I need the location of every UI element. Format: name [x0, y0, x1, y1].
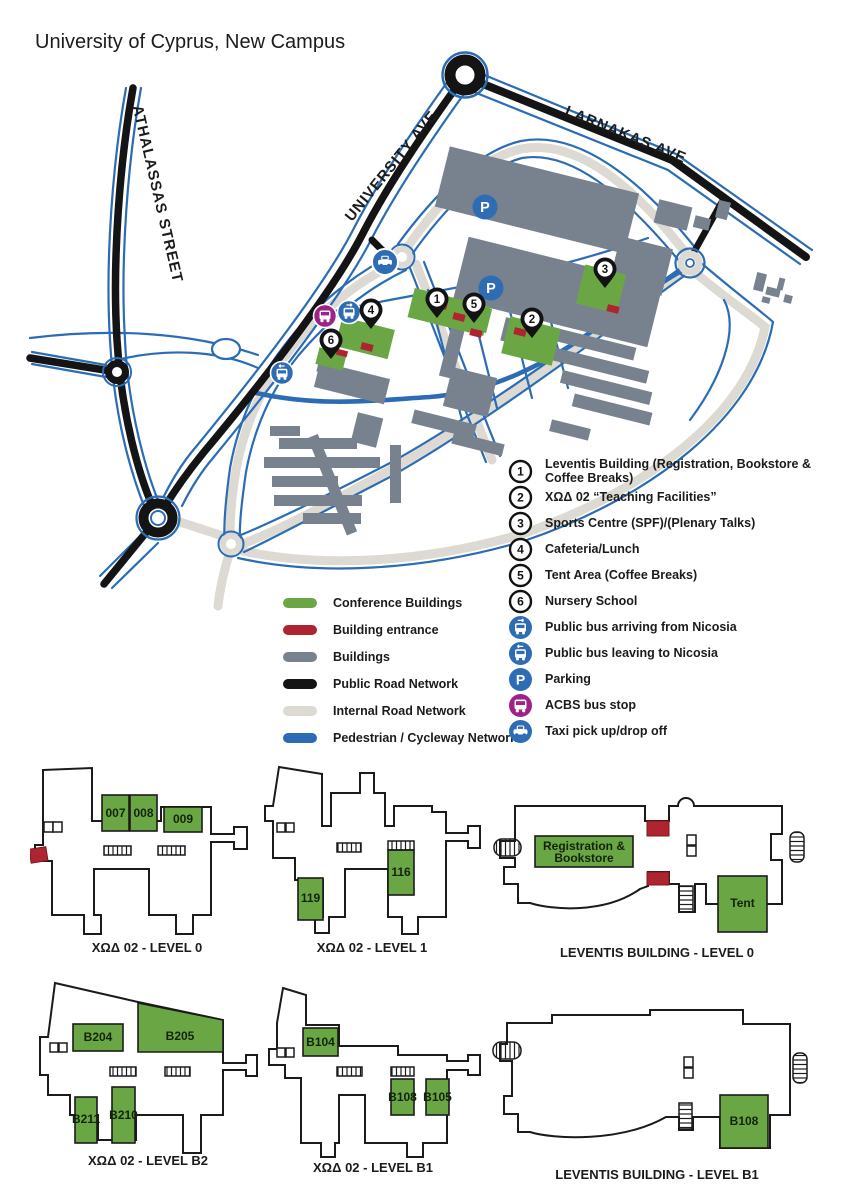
- number-3-icon: 3: [508, 511, 533, 536]
- legend-item-conference-buildings: Conference Buildings: [283, 589, 517, 616]
- number-4-icon: 4: [508, 537, 533, 562]
- svg-text:B108: B108: [730, 1114, 759, 1128]
- stairs-icon: [337, 1067, 362, 1076]
- svg-text:5: 5: [517, 568, 524, 582]
- number-6-icon: 6: [508, 589, 533, 614]
- pond: [212, 339, 240, 359]
- acbs-bus-stop-icon: [314, 305, 337, 328]
- floorplan-xod02-levelB2: B204 B205 B211 B210 ΧΩΔ 02 - LEVEL B2: [30, 975, 265, 1170]
- number-2-icon: 2: [508, 485, 533, 510]
- stairs-icon: [493, 1042, 521, 1059]
- svg-text:B211: B211: [72, 1112, 100, 1126]
- svg-text:B104: B104: [306, 1035, 335, 1049]
- legend-item-bus-leaving: Public bus leaving to Nicosia: [508, 640, 848, 666]
- floorplan-xod02-level1: 119 116 ΧΩΔ 02 - LEVEL 1: [255, 758, 490, 958]
- floorplan-leventis-level0: Registration & Bookstore Tent LEVENTIS B…: [490, 790, 825, 965]
- svg-text:2: 2: [529, 314, 535, 326]
- stairs-icon: [110, 1067, 136, 1076]
- stairs-icon: [165, 1067, 190, 1076]
- internal-road-swatch: [283, 706, 317, 716]
- legend-item-pedestrian: Pedestrian / Cycleway Network: [283, 724, 517, 751]
- svg-text:1: 1: [434, 294, 441, 306]
- floorplan-xod02-levelB1: B104 B108 B105 ΧΩΔ 02 - LEVEL B1: [255, 975, 490, 1175]
- legend-item-internal-road: Internal Road Network: [283, 697, 517, 724]
- legend-item-bus-arriving: Public bus arriving from Nicosia: [508, 614, 848, 640]
- number-1-icon: 1: [508, 459, 533, 484]
- svg-text:6: 6: [328, 335, 334, 347]
- conference-swatch: [283, 598, 317, 608]
- pedestrian-swatch: [283, 733, 317, 743]
- svg-text:3: 3: [602, 264, 608, 276]
- street-label-athalassas: ATHALASSAS STREET: [129, 104, 186, 285]
- stairs-icon: [494, 839, 521, 856]
- acbs-bus-icon: [508, 693, 533, 718]
- taxi-icon: [508, 719, 533, 744]
- bus-arriving-icon: [508, 615, 533, 640]
- legend-item-4: 4 Cafeteria/Lunch: [508, 536, 848, 562]
- svg-text:008: 008: [133, 806, 153, 820]
- stairs-icon: [793, 1053, 807, 1083]
- floorplan-caption: ΧΩΔ 02 - LEVEL 0: [92, 940, 203, 955]
- legend-item-parking: P Parking: [508, 666, 848, 692]
- stairs-icon: [679, 886, 693, 912]
- stairs-icon: [790, 832, 804, 862]
- svg-text:009: 009: [173, 812, 193, 826]
- svg-text:4: 4: [368, 305, 375, 317]
- bus-leaving-icon: [271, 362, 294, 385]
- svg-text:2: 2: [517, 490, 524, 504]
- svg-text:119: 119: [301, 891, 321, 905]
- entrance-mark: [647, 821, 669, 836]
- stairs-icon: [679, 1103, 692, 1129]
- stairs-icon: [337, 843, 361, 852]
- buildings-swatch: [283, 652, 317, 662]
- legend-item-building-entrance: Building entrance: [283, 616, 517, 643]
- legend-item-6: 6 Nursery School: [508, 588, 848, 614]
- floorplan-caption: LEVENTIS BUILDING - LEVEL B1: [555, 1167, 758, 1182]
- legend-item-3: 3 Sports Centre (SPF)/(Plenary Talks): [508, 510, 848, 536]
- svg-text:Bookstore: Bookstore: [554, 851, 614, 865]
- bus-leaving-icon: [508, 641, 533, 666]
- floorplan-caption: LEVENTIS BUILDING - LEVEL 0: [560, 945, 754, 960]
- svg-text:P: P: [480, 200, 490, 216]
- public-road-swatch: [283, 679, 317, 689]
- floorplan-caption: ΧΩΔ 02 - LEVEL 1: [317, 940, 428, 955]
- svg-text:5: 5: [471, 299, 478, 311]
- entrance-mark: [647, 872, 669, 885]
- floorplan-caption: ΧΩΔ 02 - LEVEL B1: [313, 1160, 433, 1175]
- campus-map-page: { "title": "University of Cyprus, New Ca…: [0, 0, 848, 1200]
- parking-icon-1: P: [473, 195, 498, 220]
- svg-text:P: P: [486, 281, 496, 297]
- svg-text:B108: B108: [388, 1090, 417, 1104]
- svg-text:116: 116: [391, 865, 411, 879]
- stairs-icon: [158, 846, 185, 855]
- stairs-icon: [388, 841, 414, 850]
- legend-item-1: 1 Leventis Building (Registration, Books…: [508, 458, 848, 484]
- svg-text:1: 1: [517, 464, 524, 478]
- entrance-swatch: [283, 625, 317, 635]
- legend-item-public-road: Public Road Network: [283, 670, 517, 697]
- entrance-mark: [30, 847, 48, 863]
- number-5-icon: 5: [508, 563, 533, 588]
- floorplan-xod02-level0: 007 008 009 ΧΩΔ 02 - LEVEL 0: [30, 758, 265, 958]
- stairs-icon: [104, 846, 131, 855]
- svg-text:4: 4: [517, 542, 524, 556]
- poi-legend: 1 Leventis Building (Registration, Books…: [508, 458, 848, 744]
- svg-text:6: 6: [517, 594, 524, 608]
- parking-icon: P: [508, 667, 533, 692]
- svg-text:B205: B205: [166, 1029, 195, 1043]
- svg-text:3: 3: [517, 516, 524, 530]
- bus-arriving-icon: [338, 301, 361, 324]
- legend-item-buildings: Buildings: [283, 643, 517, 670]
- legend-item-acbs: ACBS bus stop: [508, 692, 848, 718]
- svg-text:B204: B204: [84, 1030, 113, 1044]
- svg-text:P: P: [516, 671, 525, 687]
- road-legend: Conference Buildings Building entrance B…: [283, 589, 517, 751]
- taxi-icon: [372, 249, 398, 275]
- stairs-icon: [391, 1067, 414, 1076]
- svg-text:B105: B105: [423, 1090, 452, 1104]
- legend-item-taxi: Taxi pick up/drop off: [508, 718, 848, 744]
- svg-text:Tent: Tent: [730, 896, 754, 910]
- floorplan-leventis-levelB1: B108 LEVENTIS BUILDING - LEVEL B1: [490, 995, 825, 1187]
- floorplan-caption: ΧΩΔ 02 - LEVEL B2: [88, 1153, 208, 1168]
- legend-item-2: 2 ΧΩΔ 02 “Teaching Facilities”: [508, 484, 848, 510]
- svg-text:007: 007: [105, 806, 125, 820]
- svg-text:B210: B210: [109, 1108, 138, 1122]
- legend-item-5: 5 Tent Area (Coffee Breaks): [508, 562, 848, 588]
